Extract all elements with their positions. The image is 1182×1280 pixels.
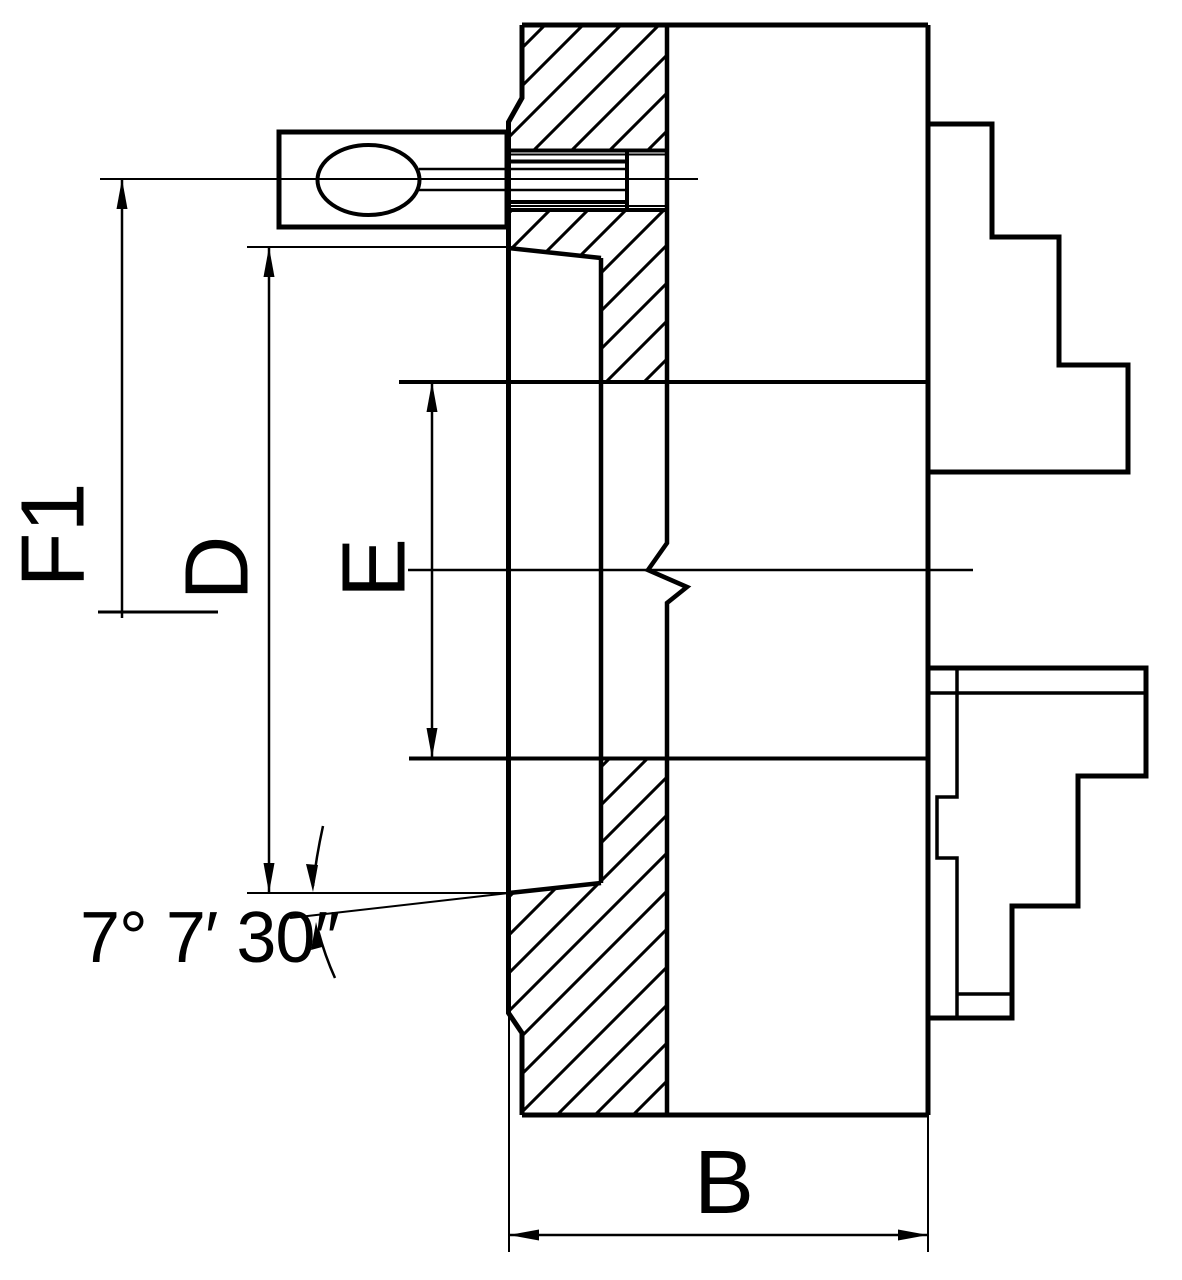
b-arrow-right xyxy=(898,1230,928,1241)
dim-label-b: B xyxy=(694,1133,754,1233)
top-jaw xyxy=(928,124,1128,472)
dim-label-d: D xyxy=(168,536,268,601)
e-arrow-down xyxy=(427,728,438,758)
f1-arrow-up xyxy=(117,179,128,209)
bottom-jaw-outline xyxy=(928,668,1146,1018)
bottom-jaw xyxy=(928,668,1146,1018)
d-arrow-down xyxy=(264,863,275,893)
technical-drawing-canvas: F1 D E B 7° 7′ 30″ xyxy=(0,0,1182,1280)
chuck-section-drawing: F1 D E B 7° 7′ 30″ xyxy=(0,0,1182,1280)
e-arrow-up xyxy=(427,382,438,412)
dim-label-f1: F1 xyxy=(4,482,104,587)
b-arrow-left xyxy=(509,1230,539,1241)
d-arrow-up xyxy=(264,247,275,277)
dim-label-e: E xyxy=(325,538,425,598)
dimension-taper-angle: 7° 7′ 30″ xyxy=(80,826,509,978)
angle-value-label: 7° 7′ 30″ xyxy=(80,898,339,978)
top-jaw-outline xyxy=(928,124,1128,472)
key-socket xyxy=(508,151,667,211)
dimension-e: E xyxy=(325,382,438,758)
bottom-jaw-guide-line xyxy=(937,668,957,1018)
angle-arrow-top xyxy=(306,864,318,892)
